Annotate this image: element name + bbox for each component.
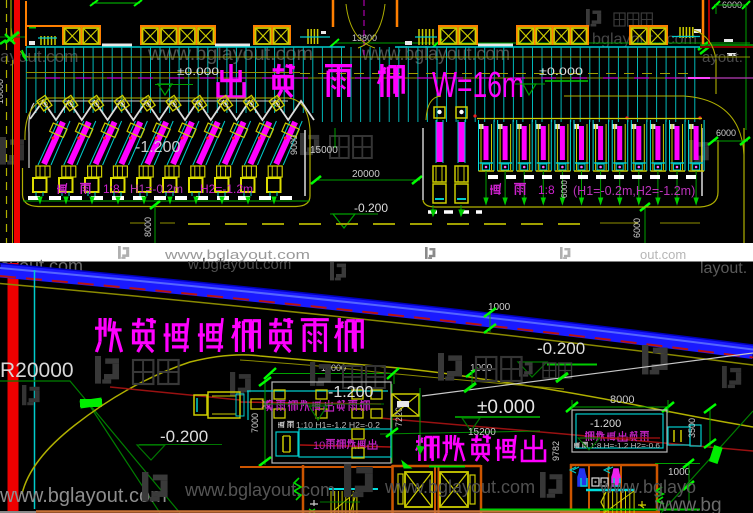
svg-text:6000: 6000	[632, 218, 642, 238]
svg-text:-0.200: -0.200	[354, 201, 388, 215]
svg-text:-1.200: -1.200	[590, 418, 621, 430]
svg-text:H2=-1.2m: H2=-1.2m	[200, 182, 253, 196]
svg-text:-1.200: -1.200	[328, 384, 373, 401]
svg-text:-0.200: -0.200	[160, 427, 208, 446]
svg-text:±0.000: ±0.000	[539, 66, 583, 78]
svg-text:layout.: layout.	[700, 260, 747, 277]
svg-text:www.bg: www.bg	[654, 495, 722, 513]
svg-text:±0.000: ±0.000	[477, 397, 535, 418]
svg-text:R20000: R20000	[0, 359, 74, 382]
svg-text:7000: 7000	[250, 413, 260, 433]
svg-text:15000: 15000	[310, 145, 338, 156]
svg-text:16000: 16000	[0, 79, 5, 104]
svg-text:3500: 3500	[687, 418, 697, 438]
svg-text:8000: 8000	[143, 217, 153, 237]
svg-text:1:8: 1:8	[538, 183, 555, 197]
svg-text:20000: 20000	[352, 169, 380, 180]
svg-text:±0.000: ±0.000	[177, 66, 219, 78]
svg-text:H1=-0.2m: H1=-0.2m	[130, 182, 183, 196]
svg-text:10: 10	[313, 440, 325, 452]
svg-text:(H1=-0.2m,H2=-1.2m): (H1=-0.2m,H2=-1.2m)	[573, 184, 695, 198]
svg-text:www.bglayout.com: www.bglayout.com	[184, 480, 335, 500]
svg-text:1:8: 1:8	[103, 182, 120, 196]
svg-text:w.bglayout.com: w.bglayout.com	[187, 256, 291, 273]
svg-text:15200: 15200	[468, 427, 496, 438]
svg-text:-1.200: -1.200	[135, 139, 180, 156]
svg-text:6000: 6000	[560, 180, 569, 198]
svg-text:8000: 8000	[610, 394, 634, 406]
svg-text:out.com: out.com	[640, 247, 686, 262]
svg-text:www.bglayout.com: www.bglayout.com	[0, 485, 167, 507]
svg-text:www.bglayo: www.bglayo	[599, 477, 696, 497]
svg-text:-0.200: -0.200	[537, 339, 585, 358]
svg-text:W=16m: W=16m	[432, 64, 524, 105]
svg-text:1:8 H=-1.2 H2=-0.6: 1:8 H=-1.2 H2=-0.6	[590, 441, 660, 450]
svg-text:bglayout...com: bglayout...com	[592, 31, 697, 48]
svg-text:www.bglayout.com: www.bglayout.com	[384, 477, 535, 497]
svg-text:6000: 6000	[716, 128, 736, 138]
svg-text:9000: 9000	[289, 135, 299, 155]
svg-text:9782: 9782	[551, 441, 561, 461]
